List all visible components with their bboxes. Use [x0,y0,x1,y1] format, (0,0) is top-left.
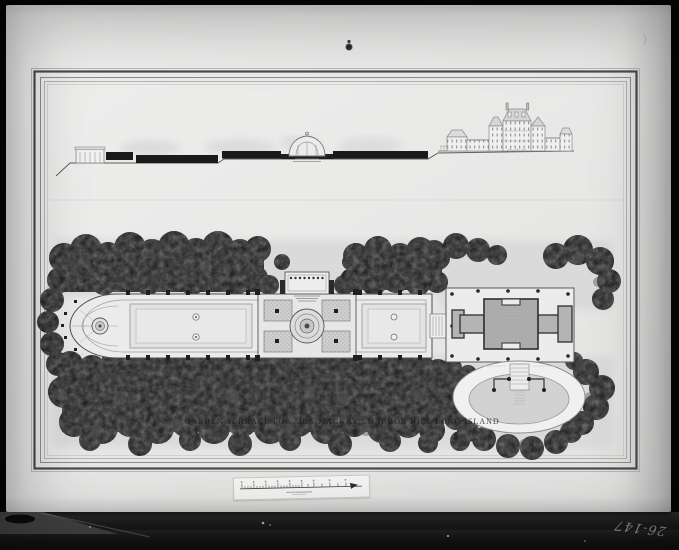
board-shading [6,5,671,512]
scale-bar-mark [350,483,358,489]
table-highlight [0,530,679,540]
table-surface [0,512,679,550]
photograph-of-drawing: GARDEN TERRACE FOR MRS·MACKAY : HARBOR H… [0,0,679,550]
scale-bar-ticks [234,475,369,499]
scale-bar [233,474,370,500]
title-lettering: GARDEN TERRACE FOR MRS·MACKAY : HARBOR H… [182,417,502,426]
mount-board [6,5,671,512]
